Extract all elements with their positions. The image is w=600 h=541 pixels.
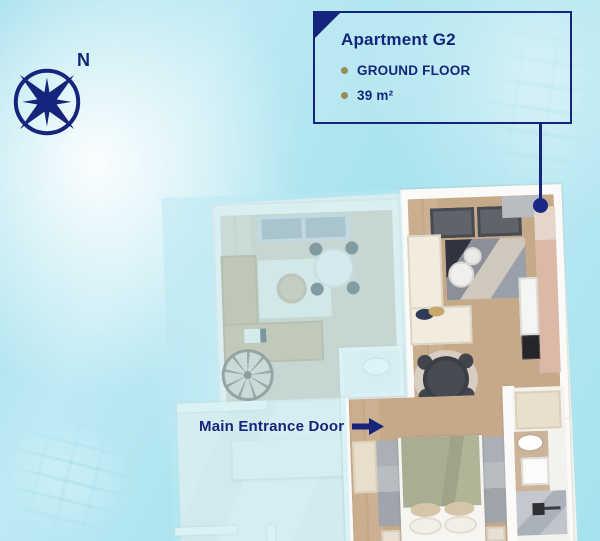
shower-fixture xyxy=(532,503,544,515)
corner-fold-icon xyxy=(315,13,340,38)
north-label: N xyxy=(77,50,90,71)
compass-rose-icon xyxy=(7,62,87,142)
cooktop xyxy=(521,335,540,360)
poster-canvas: N xyxy=(0,0,600,541)
bedroom-closet xyxy=(352,441,378,494)
nightstand xyxy=(381,530,401,541)
bed-duvet xyxy=(401,435,481,508)
floor-level-row: GROUND FLOOR xyxy=(341,63,570,78)
leader-dot xyxy=(533,198,548,213)
entrance-label: Main Entrance Door xyxy=(199,418,344,435)
fridge xyxy=(518,277,539,336)
leader-line xyxy=(539,122,542,200)
area-label: 39 m² xyxy=(357,88,393,103)
arrow-right-icon xyxy=(352,418,384,435)
floor-level-label: GROUND FLOOR xyxy=(357,63,470,78)
washbasin xyxy=(521,457,550,486)
bullet-dot-icon xyxy=(341,92,348,99)
info-panel: Apartment G2 GROUND FLOOR 39 m² xyxy=(313,11,572,124)
entrance-callout: Main Entrance Door xyxy=(199,418,384,435)
apartment-title: Apartment G2 xyxy=(341,30,570,50)
nightstand xyxy=(486,526,506,541)
bathroom-wardrobe xyxy=(514,390,561,430)
bullet-dot-icon xyxy=(341,67,348,74)
shower-bar xyxy=(544,506,560,510)
area-row: 39 m² xyxy=(341,88,570,103)
floor-plan xyxy=(161,184,578,541)
